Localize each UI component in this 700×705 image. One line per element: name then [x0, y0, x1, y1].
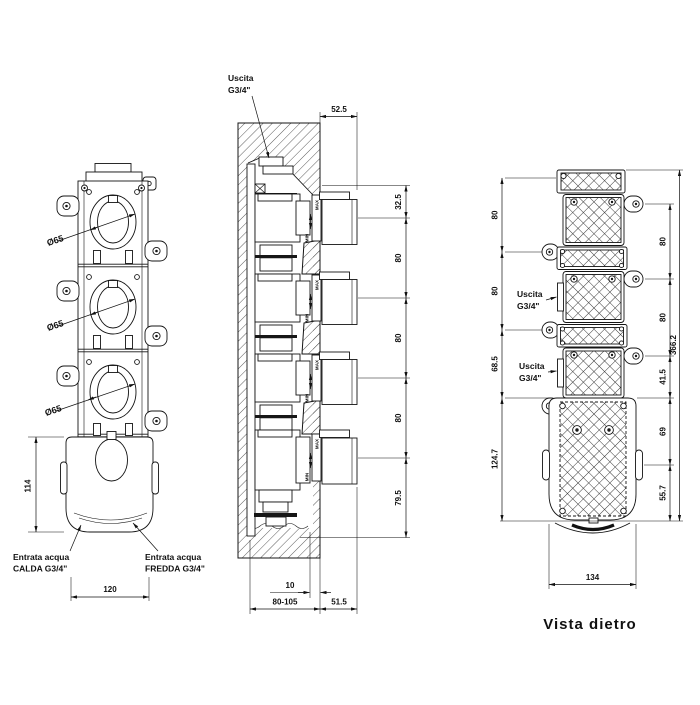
- section-view: MAX MIN MAX MIN: [228, 73, 410, 614]
- rear-module-2: [558, 271, 644, 323]
- side-bump-left: [61, 462, 68, 494]
- rear-outlet-callout-1: Uscita G3/4": [517, 289, 557, 311]
- rear-outlet-1-line-1: Uscita: [517, 289, 543, 299]
- rear-dim-left-3: 68.5: [491, 356, 500, 372]
- top-outlet-stub: [259, 157, 283, 166]
- valve-ring-inner-3: [98, 371, 129, 413]
- min-label-2: MIN: [305, 313, 310, 322]
- rear-view: Uscita G3/4" Uscita G3/4" 80 80 68.5 124…: [491, 170, 684, 633]
- knob-plate-3: [320, 352, 350, 360]
- valve-keyway-3: [109, 366, 118, 373]
- rear-outlet-2-line-1: Uscita: [519, 361, 545, 371]
- dim-79-5-label: 79.5: [394, 490, 403, 506]
- wall-wedge-3: [302, 400, 320, 434]
- dim-114-label: 114: [24, 479, 33, 492]
- wall-wedge-2: [302, 320, 320, 354]
- min-label-3: MIN: [305, 393, 310, 402]
- rear-plate-3: [542, 322, 627, 347]
- max-label-1: MAX: [315, 199, 320, 210]
- rear-outlet-callout-2: Uscita G3/4": [519, 361, 557, 383]
- rear-plate-2: [542, 244, 627, 270]
- diameter-label-2: Ø65: [46, 318, 65, 333]
- rear-bump-left: [543, 450, 550, 480]
- inlet-hot-line-2: CALDA G3/4": [13, 564, 67, 574]
- max-label-4: MAX: [315, 438, 320, 449]
- dim-52-5: 52.5: [320, 105, 357, 190]
- technical-drawing: Ø65 Ø65 Ø65 114 120 Entrata acqua CALDA …: [0, 0, 700, 700]
- rear-top-plate: [557, 170, 625, 193]
- back-plate: [247, 164, 255, 536]
- rear-dim-right-3: 41.5: [659, 369, 668, 385]
- inlet-hot-line-1: Entrata acqua: [13, 552, 69, 562]
- dim-52-5-label: 52.5: [331, 105, 347, 114]
- section-module-4: MAX MIN: [255, 430, 357, 490]
- dim-10-label: 10: [286, 581, 295, 590]
- rear-dim-134: 134: [549, 524, 636, 589]
- knob-plate-2: [320, 272, 350, 280]
- dim-80-label-1: 80: [394, 253, 403, 262]
- knob-plate-4: [320, 430, 350, 438]
- rear-bump-right: [636, 450, 643, 480]
- outlet-label-line-1: Uscita: [228, 73, 254, 83]
- knob-plate-1: [320, 192, 350, 200]
- rear-dim-left-4: 124.7: [491, 448, 500, 469]
- dim-80-105-label: 80-105: [273, 598, 298, 607]
- front-view: Ø65 Ø65 Ø65 114 120 Entrata acqua CALDA …: [13, 164, 205, 602]
- side-bump-right: [152, 462, 159, 494]
- dim-51-5-label: 51.5: [331, 598, 347, 607]
- rear-outlet-1-line-2: G3/4": [517, 301, 539, 311]
- inlet-cold-line-2: FREDDA G3/4": [145, 564, 205, 574]
- rear-bottom-body: [542, 398, 643, 533]
- rear-dim-134-label: 134: [586, 573, 600, 582]
- min-label-4: MIN: [305, 472, 310, 481]
- inlet-cold-line-1: Entrata acqua: [145, 552, 201, 562]
- valve-keyway-2: [109, 281, 118, 288]
- rear-dim-right-5: 55.7: [659, 485, 668, 501]
- diameter-label-1: Ø65: [46, 233, 65, 248]
- rear-outlet-port-1: [558, 283, 564, 311]
- inlet-hot-label: Entrata acqua CALDA G3/4": [13, 525, 81, 574]
- front-bottom-body: [61, 432, 159, 533]
- dim-32-5-label: 32.5: [394, 194, 403, 210]
- wall-wedge-1: [302, 240, 320, 274]
- dim-114: 114: [24, 437, 65, 532]
- valve-keyway-1: [109, 196, 118, 203]
- technical-drawing-page: Ø65 Ø65 Ø65 114 120 Entrata acqua CALDA …: [0, 0, 700, 700]
- rear-dim-right-1: 80: [659, 237, 668, 246]
- min-label-1: MIN: [305, 233, 310, 242]
- max-label-3: MAX: [315, 359, 320, 370]
- rear-dim-right-4: 69: [659, 427, 668, 436]
- thermo-keyhole: [96, 439, 128, 481]
- rear-dim-left-2: 80: [491, 286, 500, 295]
- dim-80-label-2: 80: [394, 333, 403, 342]
- rear-module-1: [563, 195, 643, 246]
- max-label-2: MAX: [315, 279, 320, 290]
- dim-80-label-3: 80: [394, 413, 403, 422]
- rear-outlet-port-2: [558, 359, 564, 387]
- rear-module-3: [558, 348, 644, 398]
- rear-dim-right-2: 80: [659, 313, 668, 322]
- rear-dim-total-label: 366.2: [669, 334, 678, 355]
- caption-vista-dietro: Vista dietro: [543, 616, 636, 633]
- inlet-cold-label: Entrata acqua FREDDA G3/4": [133, 523, 205, 574]
- rear-outlet-2-line-2: G3/4": [519, 373, 541, 383]
- dim-120-label: 120: [103, 585, 117, 594]
- outlet-label-line-2: G3/4": [228, 85, 250, 95]
- dim-120: 120: [71, 577, 149, 601]
- diameter-label-3: Ø65: [44, 403, 63, 418]
- rear-dim-left-1: 80: [491, 210, 500, 219]
